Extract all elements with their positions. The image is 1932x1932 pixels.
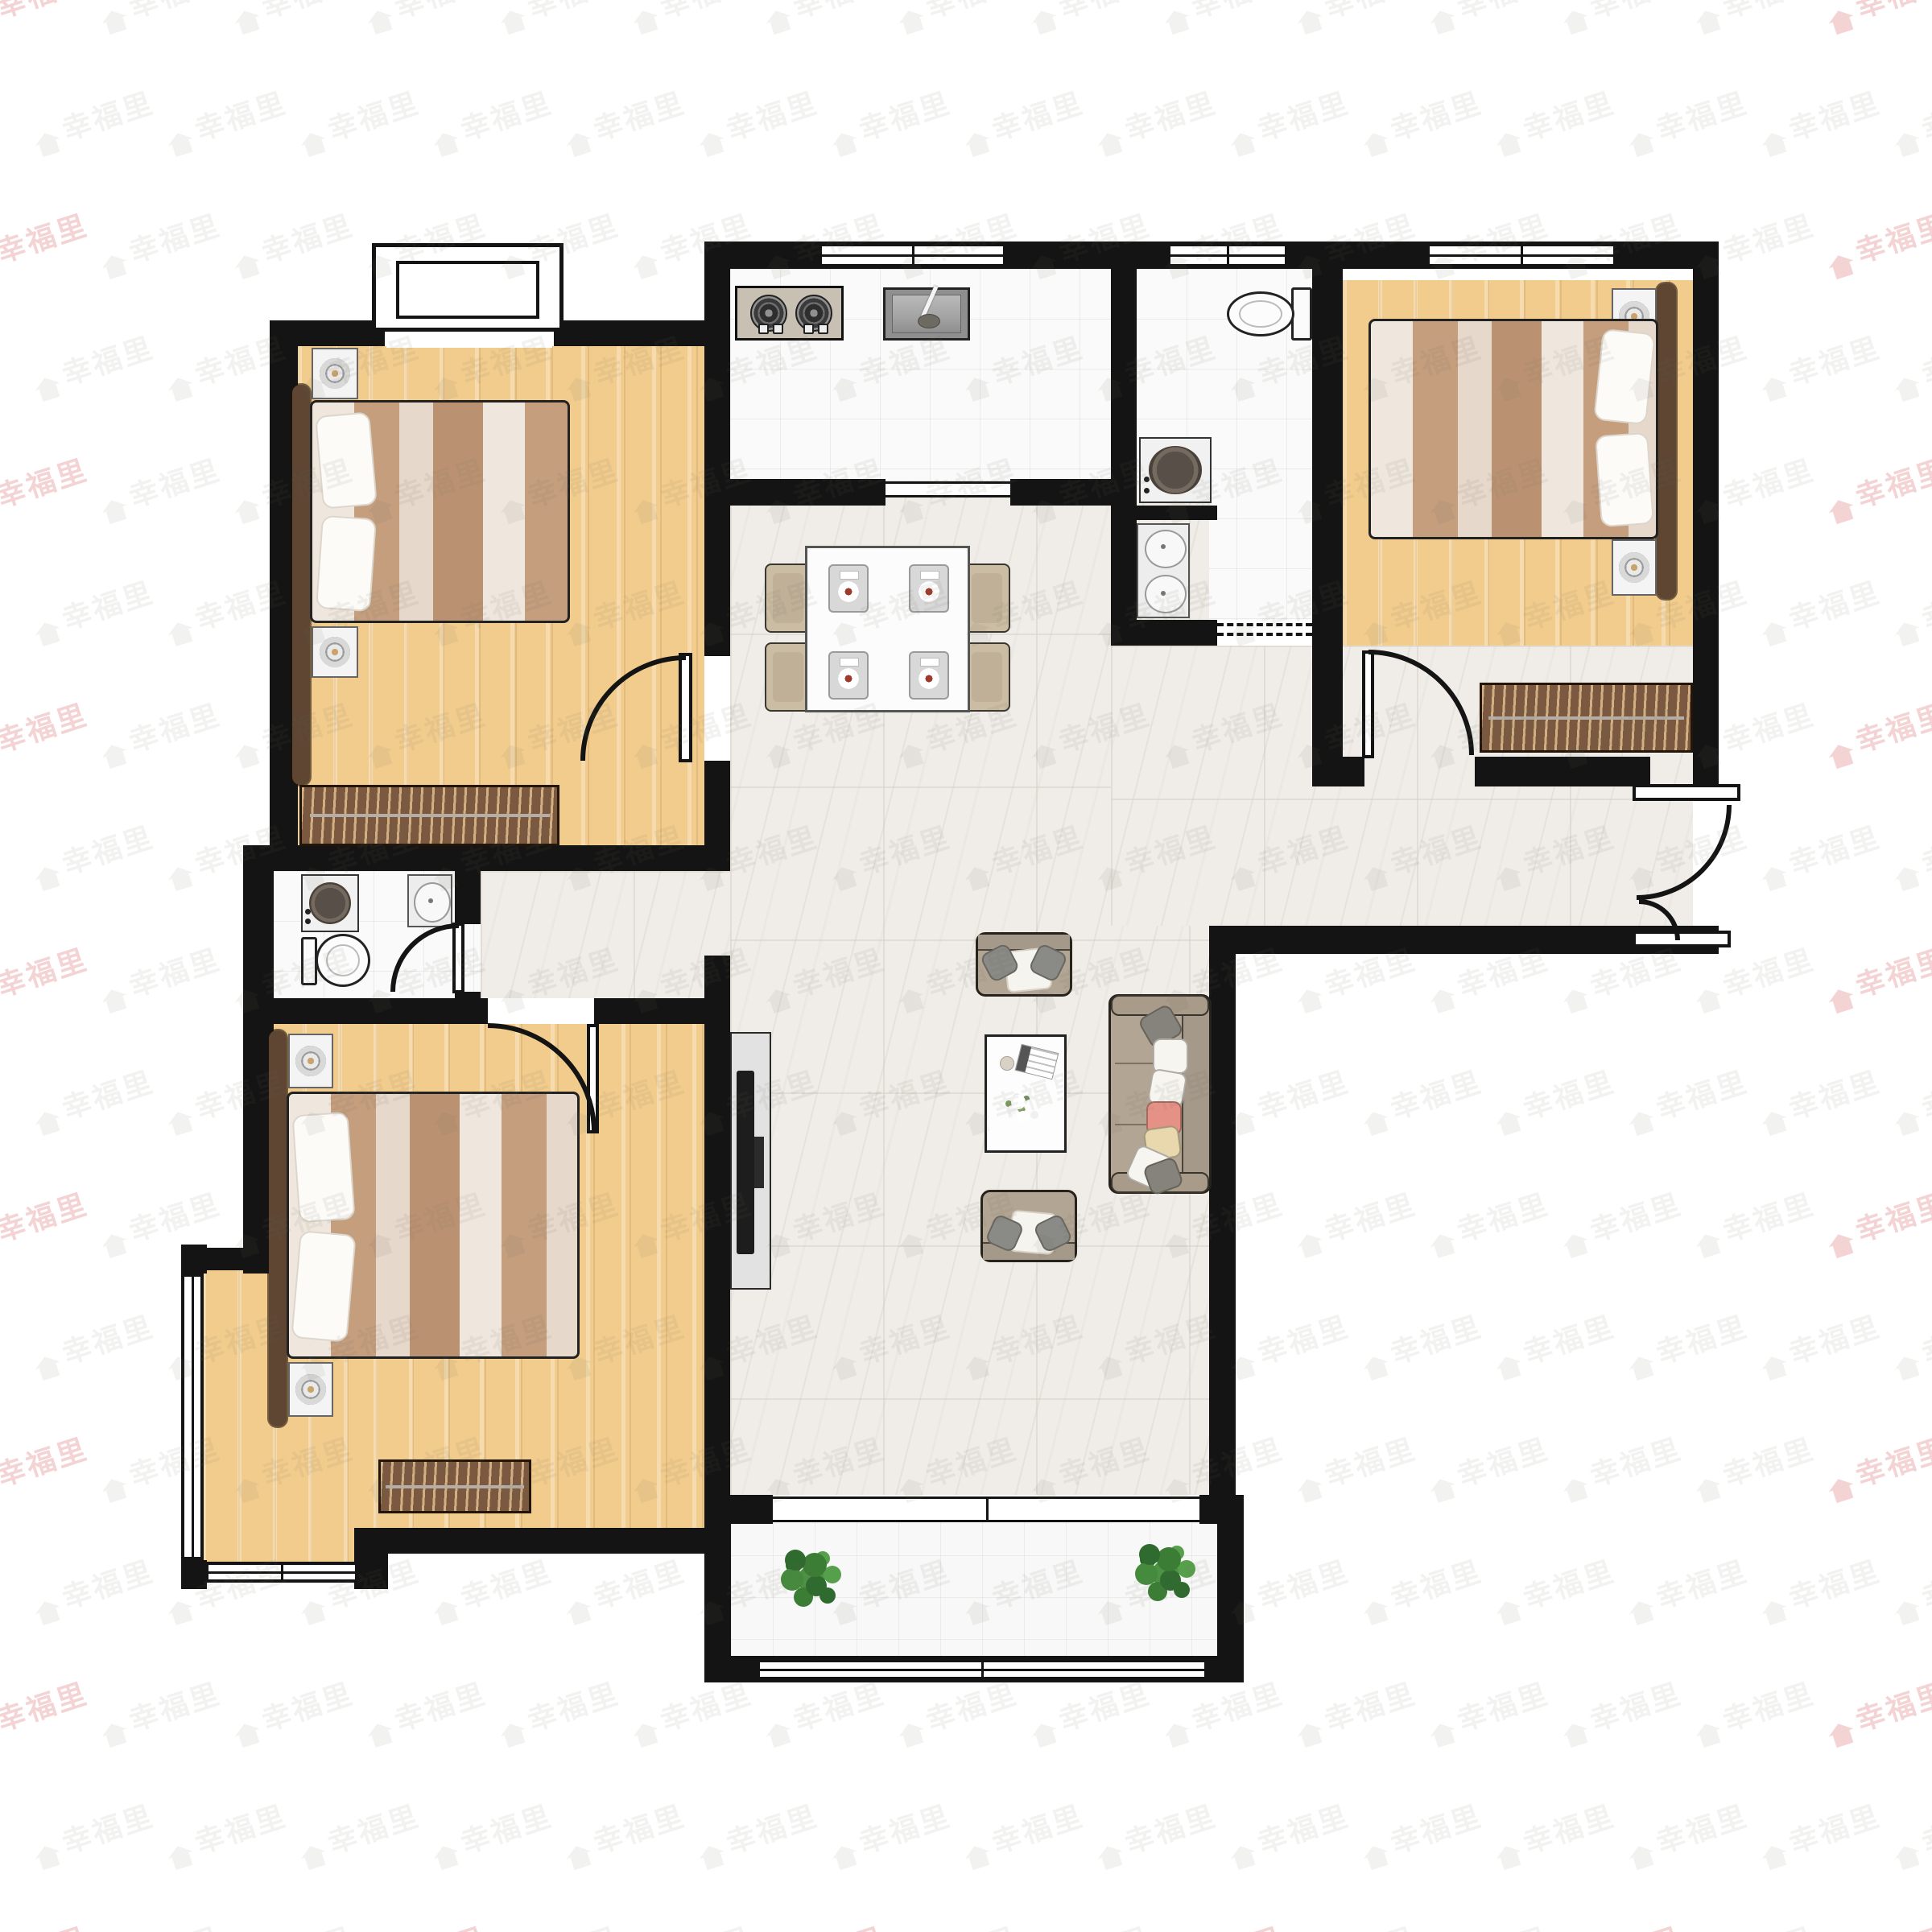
entry-door-arc-large	[1637, 805, 1729, 898]
bedroom2-door-leaf	[1364, 652, 1373, 757]
bedroom2-door-arc	[1368, 652, 1472, 755]
floorplan-canvas: 幸福里幸福里幸福里幸福里幸福里幸福里幸福里幸福里幸福里幸福里幸福里幸福里幸福里幸…	[0, 0, 1932, 1932]
bathroom-left-door-leaf	[454, 924, 463, 992]
bathroom-left-door-arc	[393, 926, 459, 992]
floorplan	[0, 0, 1932, 1932]
entry-door-frame-bottom	[1634, 932, 1729, 946]
bedroom3-door-arc	[488, 1026, 594, 1132]
bedroom1-door-arc	[583, 658, 686, 761]
door-arcs-overlay	[0, 0, 1932, 1932]
entry-door-frame-top	[1634, 786, 1739, 799]
bedroom1-door-leaf	[680, 654, 691, 761]
